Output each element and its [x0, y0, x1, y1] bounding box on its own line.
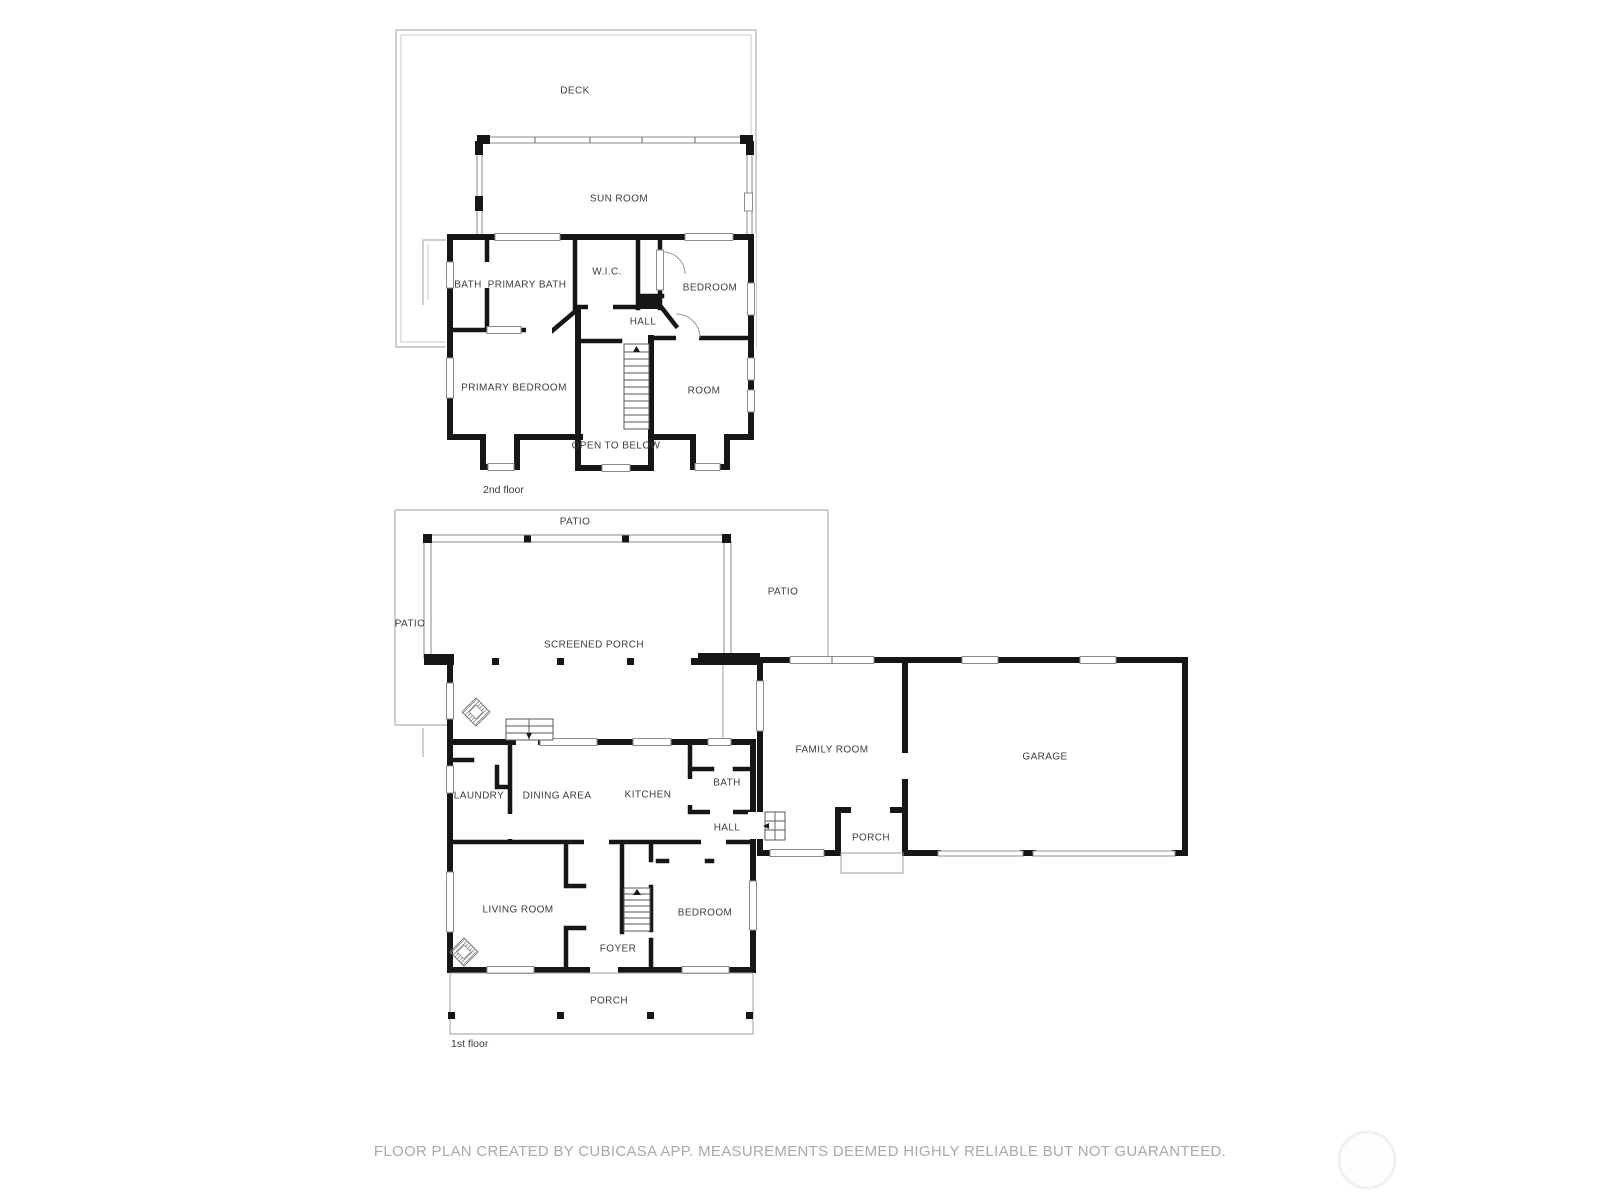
room-label-primary-bath: PRIMARY BATH [488, 280, 567, 291]
footer-disclaimer: FLOOR PLAN CREATED BY CUBICASA APP. MEAS… [0, 1143, 1600, 1160]
room-label-bedroom-2f: BEDROOM [683, 283, 737, 294]
first-floor-interior-walls [450, 742, 753, 970]
rear-porch-step-outline [841, 853, 903, 873]
room-label-primary-bedroom: PRIMARY BEDROOM [461, 383, 567, 394]
room-label-patio-left: PATIO [395, 619, 426, 630]
hall-steps-icon [763, 812, 785, 840]
room-label-room: ROOM [688, 386, 721, 397]
room-label-living-room: LIVING ROOM [482, 905, 553, 916]
room-label-wic: W.I.C. [592, 267, 622, 278]
room-label-hall-2f: HALL [630, 317, 657, 328]
floor-label-1st: 1st floor [451, 1038, 488, 1050]
room-label-foyer: FOYER [600, 944, 636, 955]
fireplace-icon [450, 938, 478, 966]
room-label-porch-front: PORCH [590, 996, 628, 1007]
room-label-sun-room: SUN ROOM [590, 194, 648, 205]
room-label-deck: DECK [560, 86, 589, 97]
room-label-patio-top: PATIO [560, 517, 591, 528]
room-label-laundry: LAUNDRY [454, 791, 504, 802]
room-label-bath-2f: BATH [454, 280, 482, 291]
second-floor-stairs-icon [624, 344, 649, 429]
floor-label-2nd: 2nd floor [483, 484, 524, 496]
floor-plan-canvas: DECK SUN ROOM BATH PRIMARY BATH W.I.C. B… [0, 0, 1600, 1200]
porch-steps-icon [506, 719, 553, 740]
room-label-patio-right: PATIO [768, 587, 799, 598]
foyer-stairs-icon [624, 888, 650, 931]
room-label-screened-porch: SCREENED PORCH [544, 640, 644, 651]
garage-door-right [1033, 851, 1175, 856]
room-label-garage: GARAGE [1022, 752, 1067, 763]
floor-plan-drawing [0, 0, 1600, 1200]
room-label-family-room: FAMILY ROOM [796, 745, 869, 756]
room-label-dining-area: DINING AREA [523, 791, 592, 802]
room-label-bedroom-1f: BEDROOM [678, 908, 732, 919]
room-label-porch-rear: PORCH [852, 833, 890, 844]
room-label-bath-1f: BATH [713, 778, 741, 789]
watermark-circle [1339, 1132, 1395, 1188]
fireplace-icon [462, 698, 490, 726]
room-label-kitchen: KITCHEN [625, 790, 672, 801]
room-label-hall-1f: HALL [714, 823, 741, 834]
garage-door-left [938, 851, 1023, 856]
room-label-open-to-below: OPEN TO BELOW [572, 441, 661, 452]
first-floor-exterior-walls [450, 660, 1185, 970]
